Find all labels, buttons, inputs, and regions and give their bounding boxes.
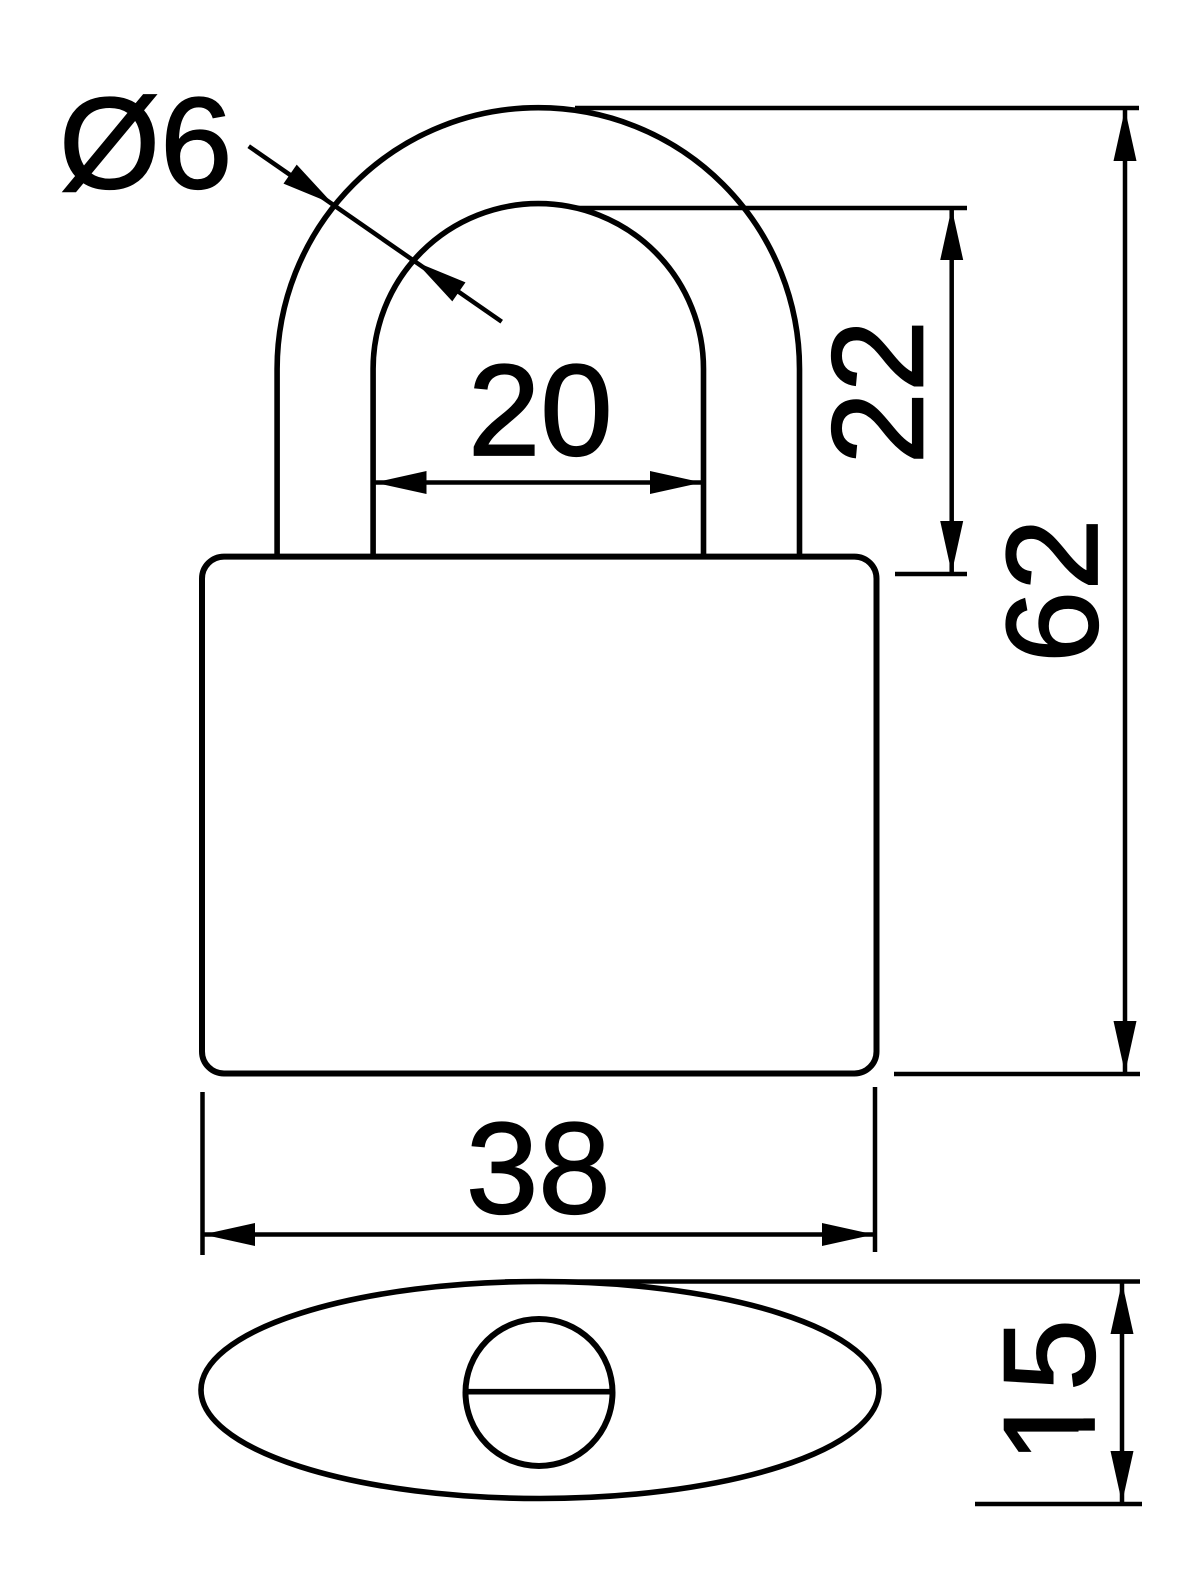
svg-text:Ø6: Ø6 [59,70,232,216]
svg-text:62: 62 [979,518,1125,663]
svg-text:20: 20 [468,337,613,483]
svg-text:38: 38 [466,1095,611,1241]
svg-text:22: 22 [805,320,951,465]
